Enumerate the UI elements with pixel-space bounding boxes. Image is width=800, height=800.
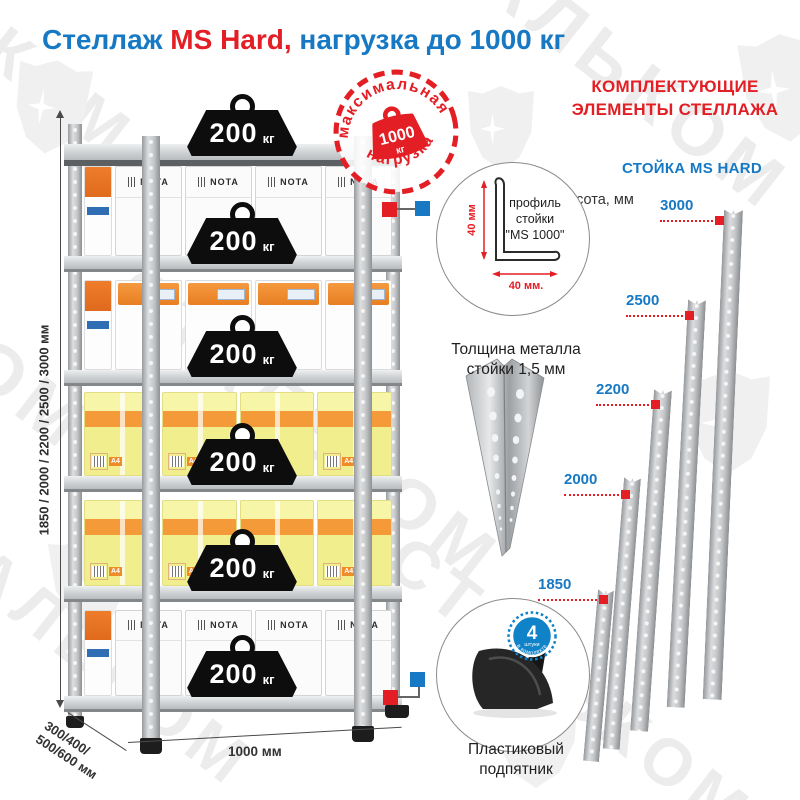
sparkle-icon (480, 113, 505, 145)
height-dimension-label: 1850 / 2000 / 2200 / 2500 / 3000 мм (37, 325, 52, 536)
page-title: Стеллаж MS Hard, нагрузка до 1000 кг (42, 24, 565, 56)
height-dimension-line (60, 114, 61, 706)
title-model: MS Hard, (170, 24, 291, 55)
box-label (287, 289, 315, 300)
profile-caption-line2: стойки (516, 212, 554, 226)
rack-front-right-post (354, 136, 372, 728)
watermark-shield-icon (468, 86, 534, 170)
foot-caption-line1: Пластиковый (428, 740, 604, 760)
box-lid: NOTA (256, 167, 321, 198)
weight-icon: 200кг (186, 331, 298, 377)
barcode-icon (338, 620, 347, 630)
barcode-icon (128, 177, 137, 187)
box-brand: NOTA (280, 177, 309, 187)
shelf (64, 696, 402, 712)
load-unit: кг (263, 131, 275, 146)
load-unit: кг (263, 566, 275, 581)
dotted-leader (660, 216, 724, 225)
foot-caption-line2: подпятник (428, 760, 604, 780)
dotted-line (626, 315, 683, 317)
post-marker (715, 216, 724, 225)
a4-badge: A4 (109, 567, 122, 576)
shelf-load-badge: 200кг (186, 315, 298, 377)
load-unit: кг (263, 460, 275, 475)
profile-dim-vertical: 40 мм (466, 204, 478, 236)
a4-label: A4 (90, 453, 122, 470)
profile-caption-line1: профиль (509, 196, 561, 210)
rack-rear-left-post (68, 124, 82, 718)
paper-pack (84, 280, 112, 370)
post-height-value: 2200 (596, 381, 660, 398)
thickness-caption: Толщина металла стойки 1,5 мм (428, 340, 604, 380)
box-label (217, 289, 245, 300)
dotted-line (564, 494, 619, 496)
a4-label: A4 (90, 563, 122, 580)
sparkle-icon (25, 87, 58, 126)
a4-badge: A4 (109, 457, 122, 466)
post-height-value: 3000 (660, 197, 724, 214)
post-section-title: СТОЙКА MS HARD (600, 160, 784, 177)
box-lid (258, 283, 319, 305)
callout-marker-blue (415, 201, 430, 216)
weight-icon: 200кг (186, 439, 298, 485)
load-value: 200 (210, 118, 258, 149)
profile-diagram-circle: 40 мм 40 мм. профиль стойки "MS 1000" (436, 162, 590, 316)
profile-dim-horizontal: 40 мм. (509, 280, 544, 292)
poster-canvas: СТАЛЬКОМ СТАЛЬКОМ СТАЛЬКОМ СТАЛЬКОМ СТАЛ… (0, 0, 800, 800)
post-height-label-2000: 2000 (564, 471, 630, 499)
weight-icon: 200кг (186, 110, 298, 156)
callout-line (418, 687, 420, 698)
load-unit: кг (263, 672, 275, 687)
callout-line (398, 696, 420, 698)
callout-marker-blue (410, 672, 425, 687)
post-height-value: 2500 (626, 292, 694, 309)
barcode-icon (268, 177, 277, 187)
paper-pack (84, 166, 112, 256)
load-value: 200 (210, 447, 258, 478)
barcode-icon (323, 563, 341, 580)
load-unit: кг (263, 352, 275, 367)
barcode-icon (198, 177, 207, 187)
a4-label: A4 (323, 453, 355, 470)
arrow-down-icon (56, 700, 64, 708)
foot-shadow (473, 708, 557, 718)
badge-count: 4 (527, 623, 538, 644)
thickness-line2: стойки 1,5 мм (428, 360, 604, 380)
dotted-line (596, 404, 649, 406)
weight-icon: 200кг (186, 218, 298, 264)
post-marker (685, 311, 694, 320)
post-height-value: 2000 (564, 471, 630, 488)
barcode-icon (90, 453, 108, 470)
dotted-leader (564, 490, 630, 499)
post-height-label-3000: 3000 (660, 197, 724, 225)
weight-icon: 200кг (186, 651, 298, 697)
shelf-load-badge: 200кг (186, 202, 298, 264)
box-brand: NOTA (210, 620, 239, 630)
profile-caption-line3: "MS 1000" (506, 228, 565, 242)
foot-caption: Пластиковый подпятник (428, 740, 604, 780)
post-height-label-2500: 2500 (626, 292, 694, 320)
barcode-icon (168, 563, 186, 580)
box-lid: NOTA (186, 167, 251, 198)
barcode-icon (90, 563, 108, 580)
dotted-leader (596, 400, 660, 409)
plastic-foot (385, 705, 409, 718)
dotted-line (660, 220, 713, 222)
load-unit: кг (263, 239, 275, 254)
components-header-line1: КОМПЛЕКТУЮЩИЕ (558, 76, 792, 99)
shelf-load-badge: 200кг (186, 529, 298, 591)
upright-post-2200 (630, 389, 672, 731)
callout-marker-red (383, 690, 398, 705)
corner-post-photo (452, 352, 557, 564)
weight-icon: 200кг (186, 545, 298, 591)
components-header-line2: ЭЛЕМЕНТЫ СТЕЛЛАЖА (558, 99, 792, 122)
post-marker (599, 595, 608, 604)
a4-label: A4 (323, 563, 355, 580)
title-part: Стеллаж (42, 24, 170, 55)
dotted-leader (626, 311, 694, 320)
post-height-label-2200: 2200 (596, 381, 660, 409)
load-value: 200 (210, 339, 258, 370)
load-value: 200 (210, 226, 258, 257)
quantity-badge: 4 штуки в комплекте (506, 610, 558, 662)
barcode-icon (268, 620, 277, 630)
arrow-up-icon (56, 110, 64, 118)
shelf-load-badge: 200кг (186, 423, 298, 485)
post-height-value: 1850 (538, 576, 608, 593)
rack-front-left-post (142, 136, 160, 740)
barcode-icon (168, 453, 186, 470)
post-marker (621, 490, 630, 499)
load-value: 200 (210, 659, 258, 690)
shelf-load-badge: 200кг (186, 635, 298, 697)
paper-pack (84, 610, 112, 696)
barcode-icon (323, 453, 341, 470)
box-brand: NOTA (280, 620, 309, 630)
callout-marker-red (382, 202, 397, 217)
post-marker (651, 400, 660, 409)
badge-unit: штуки (524, 642, 539, 648)
barcode-icon (128, 620, 137, 630)
callout-line (397, 208, 416, 210)
barcode-icon (198, 620, 207, 630)
width-dimension-label: 1000 мм (228, 744, 282, 759)
load-value: 200 (210, 553, 258, 584)
components-header: КОМПЛЕКТУЮЩИЕ ЭЛЕМЕНТЫ СТЕЛЛАЖА (558, 76, 792, 122)
shelf-load-badge: 200кг (186, 94, 298, 156)
thickness-line1: Толщина металла (428, 340, 604, 360)
upright-post-2500 (667, 300, 706, 708)
title-part: нагрузка до 1000 кг (292, 24, 566, 55)
box-lid (188, 283, 249, 305)
box-brand: NOTA (210, 177, 239, 187)
